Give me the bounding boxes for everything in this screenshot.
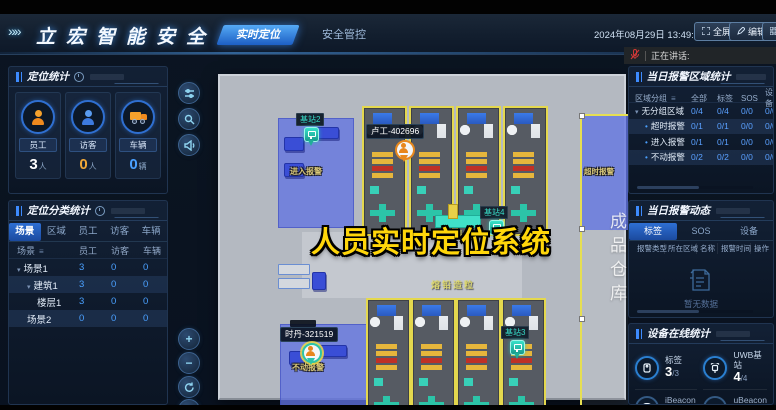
reset-view-button[interactable] — [178, 376, 200, 398]
tab-area[interactable]: 区域 — [41, 223, 73, 241]
base-station-3-marker[interactable] — [510, 340, 524, 360]
table-header: 场景 员工 访客 车辆 — [9, 242, 167, 259]
visitor-icon — [71, 100, 105, 134]
uwb-station-icon — [703, 356, 727, 380]
clock-icon — [95, 206, 105, 216]
zoom-out-button[interactable]: − — [178, 352, 200, 374]
machine-part — [448, 204, 458, 219]
production-lane — [411, 298, 456, 405]
tab-device[interactable]: 设备 — [725, 223, 773, 240]
production-lane — [456, 298, 501, 405]
stat-card-vehicle[interactable]: 车辆 0辆 — [115, 92, 161, 179]
entry-alarm-label: 进入报警 — [290, 166, 322, 177]
table — [278, 278, 310, 289]
device-item-tag[interactable]: 标签 3/3 — [635, 348, 697, 390]
person-1-label[interactable]: 卢工-402696 — [366, 124, 424, 139]
table — [278, 264, 310, 275]
more-tools-button[interactable] — [762, 22, 776, 41]
video-caption: 人员实时定位系统 — [286, 219, 576, 261]
accent-tick — [636, 72, 639, 82]
panel-alarm-area-stats: 当日报警区域统计 区域分组 全部 标签 SOS 设备 无分组区域 0/40/40… — [628, 66, 774, 194]
empty-document-icon — [688, 266, 714, 294]
app-logo: 立宏智能安全 — [36, 22, 216, 49]
panel-header: 设备在线统计 — [629, 324, 773, 344]
horizontal-scrollbar[interactable] — [637, 186, 753, 189]
accent-tick — [16, 72, 19, 82]
panel-title: 当日报警区域统计 — [646, 69, 730, 84]
station-4-label: 基站4 — [480, 206, 508, 219]
horizontal-scrollbar[interactable] — [637, 310, 753, 313]
tab-vehicle[interactable]: 车辆 — [135, 223, 167, 241]
stat-cards: 员工 3人 访客 0人 车辆 0辆 — [9, 87, 167, 184]
accent-tick — [636, 329, 639, 339]
desk — [284, 137, 304, 151]
warehouse-zone[interactable]: 超时报警 成品仓库 — [580, 114, 628, 405]
divider — [645, 51, 646, 61]
timeout-alarm-label: 超时报警 — [584, 166, 614, 177]
panel-header: 当日报警区域统计 — [629, 67, 773, 87]
panel-title: 当日报警动态 — [647, 203, 710, 218]
col-area-group[interactable]: 区域分组 — [635, 93, 691, 104]
cabinet — [312, 272, 326, 290]
letterbox-bottom — [0, 405, 776, 410]
table-header: 报警类型 所在区域 名称 报警时间 操作 — [629, 241, 773, 256]
stat-value: 0人 — [79, 156, 96, 173]
stat-card-employee[interactable]: 员工 3人 — [15, 92, 61, 179]
col-alarm-type: 报警类型 — [634, 243, 664, 254]
stat-label: 访客 — [69, 138, 107, 152]
panel-title: 定位分类统计 — [27, 203, 90, 218]
placeholder-bar — [716, 331, 750, 337]
classify-tabs: 场景 区域 员工 访客 车辆 — [9, 223, 167, 242]
table-row[interactable]: 建筑1 300 — [9, 276, 167, 293]
production-lane — [503, 106, 548, 236]
table-row[interactable]: 不动报警 0/20/20/00/0 — [629, 150, 773, 166]
panel-position-stats: 定位统计 员工 3人 访客 0人 车辆 0辆 — [8, 66, 168, 194]
accent-tick — [21, 206, 22, 216]
letterbox-top — [0, 0, 776, 14]
tag-device-icon — [635, 356, 659, 380]
grid-icon — [770, 27, 776, 37]
col-tag: 标签 — [717, 93, 741, 104]
table-row[interactable]: 超时报警 0/10/10/00/0 — [629, 119, 773, 135]
panel-header: 定位分类统计 — [9, 201, 167, 221]
ibeacon-icon — [635, 396, 659, 406]
clock-icon — [74, 72, 84, 82]
device-value: 4/4 — [733, 370, 767, 385]
truck-icon — [121, 100, 155, 134]
selection-handle[interactable] — [579, 226, 585, 232]
panel-title: 定位统计 — [27, 69, 69, 84]
person-1-marker[interactable] — [395, 140, 413, 164]
warehouse-label: 成品仓库 — [604, 212, 628, 308]
placeholder-bar — [716, 208, 750, 214]
table-header: 区域分组 全部 标签 SOS 设备 — [629, 87, 773, 103]
station-3-label: 基站3 — [501, 326, 529, 339]
person-2-label[interactable]: 时丹-321519 — [280, 327, 338, 342]
station-2-label: 基站2 — [296, 113, 324, 126]
col-vehicle: 车辆 — [143, 244, 167, 257]
stat-card-visitor[interactable]: 访客 0人 — [65, 92, 111, 179]
device-item-ibeacon[interactable]: iBeacon 0/0 — [635, 393, 697, 405]
table-row[interactable]: 场景2 000 — [9, 310, 167, 327]
col-alarm-time: 报警时间 — [717, 243, 750, 254]
tab-realtime-location[interactable]: 实时定位 — [220, 25, 296, 45]
tab-employee[interactable]: 员工 — [72, 223, 104, 241]
person-2-marker[interactable] — [302, 343, 320, 367]
table-row[interactable]: 场景1 300 — [9, 259, 167, 276]
selection-handle[interactable] — [579, 316, 585, 322]
col-scene[interactable]: 场景 — [17, 244, 79, 257]
device-item-ubeacon[interactable]: uBeacon 0/0 — [703, 393, 767, 405]
placeholder-bar — [90, 74, 124, 80]
production-lane — [366, 298, 411, 405]
table-row[interactable]: 楼层1 300 — [9, 293, 167, 310]
panel-title: 设备在线统计 — [647, 326, 710, 341]
worker-icon — [21, 100, 55, 134]
voice-status-bar: 正在讲话: — [624, 47, 776, 64]
marker-mini-label — [290, 320, 316, 327]
facility-map[interactable]: 进入报警 不动报警 超时报警 — [168, 54, 628, 405]
stat-value: 0辆 — [129, 156, 146, 173]
zoom-in-button[interactable]: + — [178, 328, 200, 350]
ubeacon-icon — [703, 396, 727, 406]
col-action: 操作 — [750, 243, 773, 254]
pencil-icon — [737, 27, 745, 37]
col-sos: SOS — [741, 94, 765, 103]
app-window: »» 立宏智能安全 实时定位 安全管控 2024年08月29日 13:49:34… — [0, 0, 776, 410]
device-value: 3/3 — [665, 365, 682, 380]
panel-header: 定位统计 — [9, 67, 167, 87]
empty-state: 暂无数据 — [629, 266, 773, 310]
layers-filter-button[interactable] — [178, 82, 200, 104]
stat-label: 车辆 — [119, 138, 157, 152]
tab-scene[interactable]: 场景 — [9, 223, 41, 241]
base-station-2-marker[interactable] — [304, 127, 318, 147]
empty-text: 暂无数据 — [684, 298, 718, 310]
stat-value: 3人 — [29, 156, 46, 173]
panel-device-online-stats: 设备在线统计 标签 3/3 UWB基站 4/4 — [628, 323, 774, 405]
placeholder-bar — [111, 208, 145, 214]
accent-tick — [641, 72, 642, 82]
feed-tabs: 标签 SOS 设备 — [629, 223, 773, 241]
accent-tick — [641, 329, 642, 339]
microphone-muted-icon — [630, 47, 640, 65]
floor-zone-label: 熔铅造粒 — [358, 278, 548, 291]
panel-header: 当日报警动态 — [629, 201, 773, 221]
col-employee: 员工 — [79, 244, 111, 257]
device-label: UWB基站 — [733, 350, 767, 370]
datetime-display: 2024年08月29日 13:49:34 — [594, 27, 704, 41]
stat-label: 员工 — [19, 138, 57, 152]
accent-tick — [641, 206, 642, 216]
voice-status-label: 正在讲话: — [651, 49, 690, 62]
broadcast-button[interactable] — [178, 134, 200, 156]
panel-alarm-feed: 当日报警动态 标签 SOS 设备 报警类型 所在区域 名称 报警时间 操作 暂无… — [628, 200, 774, 318]
table-row[interactable]: 无分组区域 0/40/40/00/0 — [629, 103, 773, 119]
selection-handle[interactable] — [579, 113, 585, 119]
col-all: 全部 — [691, 93, 717, 104]
collapse-chevrons-icon[interactable]: »» — [8, 23, 20, 39]
device-item-uwb-station[interactable]: UWB基站 4/4 — [703, 348, 767, 390]
col-area: 所在区域 — [664, 243, 696, 254]
main-nav: 实时定位 安全管控 — [220, 25, 382, 45]
tab-safety-control[interactable]: 安全管控 — [306, 25, 382, 45]
tab-tag[interactable]: 标签 — [629, 223, 677, 240]
accent-tick — [636, 206, 639, 216]
device-grid: 标签 3/3 UWB基站 4/4 iBeacon 0/0 — [629, 344, 773, 405]
col-name: 名称 — [696, 243, 717, 254]
tab-visitor[interactable]: 访客 — [104, 223, 136, 241]
table-row[interactable]: 进入报警 0/10/10/00/0 — [629, 134, 773, 150]
tab-sos[interactable]: SOS — [677, 223, 725, 240]
search-button[interactable] — [178, 108, 200, 130]
panel-classification-stats: 定位分类统计 场景 区域 员工 访客 车辆 场景 员工 访客 车辆 场景1 30… — [8, 200, 168, 405]
accent-tick — [21, 72, 22, 82]
fullscreen-icon — [702, 27, 710, 37]
desk — [319, 345, 347, 357]
placeholder-bar — [736, 74, 766, 80]
col-visitor: 访客 — [111, 244, 143, 257]
accent-tick — [16, 206, 19, 216]
